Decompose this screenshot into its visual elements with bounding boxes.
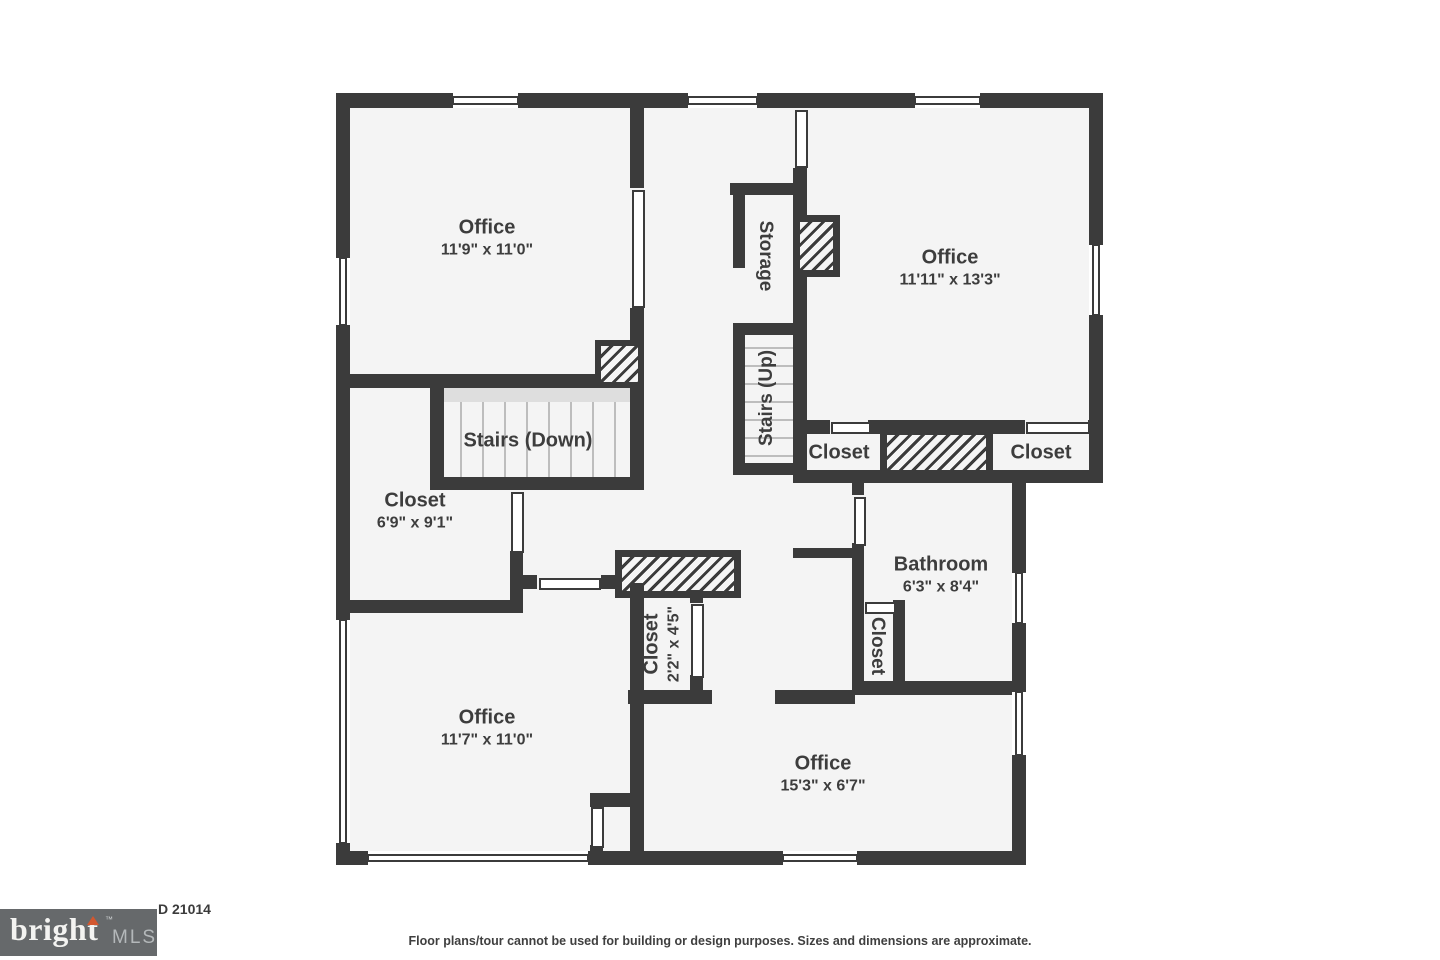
room-name: Office xyxy=(899,246,1000,269)
wall xyxy=(430,388,444,477)
room-label-closet-small: Closet 2'2" x 4'5" xyxy=(640,606,683,682)
brightmls-logo: bright ™ MLS xyxy=(0,909,157,956)
room-name: Office xyxy=(780,752,865,775)
door-leaf xyxy=(795,110,808,168)
room-name: Stairs (Down) xyxy=(464,430,593,453)
floor-plan: Office 11'9" x 11'0" Office 11'11" x 13'… xyxy=(0,0,1440,960)
room-dims: 6'3" x 8'4" xyxy=(894,578,988,596)
window xyxy=(783,851,857,865)
window xyxy=(368,851,588,865)
room-label-bathroom: Bathroom 6'3" x 8'4" xyxy=(894,553,988,596)
window xyxy=(915,93,980,108)
logo-triangle-icon xyxy=(87,916,99,925)
room-name: Storage xyxy=(754,221,776,292)
room-label-office-tl: Office 11'9" x 11'0" xyxy=(441,216,533,259)
address-fragment: D 21014 xyxy=(158,901,211,917)
wall xyxy=(793,470,1103,483)
room-dims: 11'9" x 11'0" xyxy=(441,241,533,259)
door-leaf xyxy=(854,497,866,546)
door-leaf xyxy=(1026,422,1090,434)
wall xyxy=(852,483,864,495)
room-name: Stairs (Up) xyxy=(756,350,778,446)
wall xyxy=(630,108,644,188)
room-name: Closet xyxy=(1010,442,1071,465)
wall xyxy=(590,793,603,806)
room-label-office-br: Office 15'3" x 6'7" xyxy=(780,752,865,795)
window xyxy=(336,620,350,843)
wall xyxy=(336,600,523,613)
disclaimer-text: Floor plans/tour cannot be used for buil… xyxy=(0,934,1440,948)
room-name: Bathroom xyxy=(894,553,988,576)
wall xyxy=(733,183,745,268)
window xyxy=(1012,573,1026,623)
wall xyxy=(510,477,523,490)
room-label-closet-bath: Closet xyxy=(866,617,888,675)
door-leaf xyxy=(691,604,704,678)
room-name: Closet xyxy=(640,606,663,682)
stair-tread xyxy=(745,347,793,349)
door-leaf xyxy=(511,492,524,553)
stairs-landing xyxy=(444,388,630,402)
chimney-hatch xyxy=(601,346,638,382)
wall xyxy=(793,548,852,558)
wall xyxy=(852,681,1026,695)
room-name: Office xyxy=(441,706,533,729)
room-label-closet-row-right: Closet xyxy=(1010,442,1071,465)
room-label-closet-row-left: Closet xyxy=(808,442,869,465)
door-leaf xyxy=(831,422,871,434)
room-name: Closet xyxy=(377,489,453,512)
room-dims: 11'11" x 13'3" xyxy=(899,271,1000,289)
wall xyxy=(690,590,703,603)
room-dims: 6'9" x 9'1" xyxy=(377,514,453,532)
stair-tread xyxy=(460,402,462,477)
room-dims: 15'3" x 6'7" xyxy=(780,777,865,795)
room-name: Office xyxy=(441,216,533,239)
room-label-stairs-down: Stairs (Down) xyxy=(464,430,593,453)
wall xyxy=(630,388,644,477)
room-label-closet-main: Closet 6'9" x 9'1" xyxy=(377,489,453,532)
room-name: Closet xyxy=(808,442,869,465)
window xyxy=(688,93,757,108)
logo-trademark: ™ xyxy=(105,915,113,924)
room-label-stairs-up: Stairs (Up) xyxy=(756,350,778,446)
chimney-hatch xyxy=(800,222,833,270)
room-label-storage: Storage xyxy=(754,221,776,292)
room-name: Closet xyxy=(866,617,888,675)
room-label-office-bl: Office 11'7" x 11'0" xyxy=(441,706,533,749)
window xyxy=(1012,692,1026,755)
window xyxy=(453,93,518,108)
room-label-office-tr: Office 11'11" x 13'3" xyxy=(899,246,1000,289)
door-leaf xyxy=(591,807,604,848)
stair-tread xyxy=(614,402,616,477)
wall xyxy=(775,690,855,704)
door-leaf xyxy=(865,602,896,614)
wall xyxy=(430,477,644,490)
wall xyxy=(628,690,712,704)
door-leaf xyxy=(539,578,601,590)
wall xyxy=(733,463,796,475)
chimney-hatch xyxy=(887,435,986,470)
room-dims: 11'7" x 11'0" xyxy=(441,731,533,749)
wall xyxy=(510,575,537,589)
wall xyxy=(1088,420,1103,434)
wall xyxy=(1012,470,1026,865)
wall xyxy=(852,600,864,613)
door-leaf xyxy=(632,190,645,308)
window xyxy=(1089,245,1103,315)
window xyxy=(336,258,350,325)
room-dims: 2'2" x 4'5" xyxy=(665,606,683,682)
stair-tread xyxy=(745,455,793,457)
wall xyxy=(733,323,745,475)
